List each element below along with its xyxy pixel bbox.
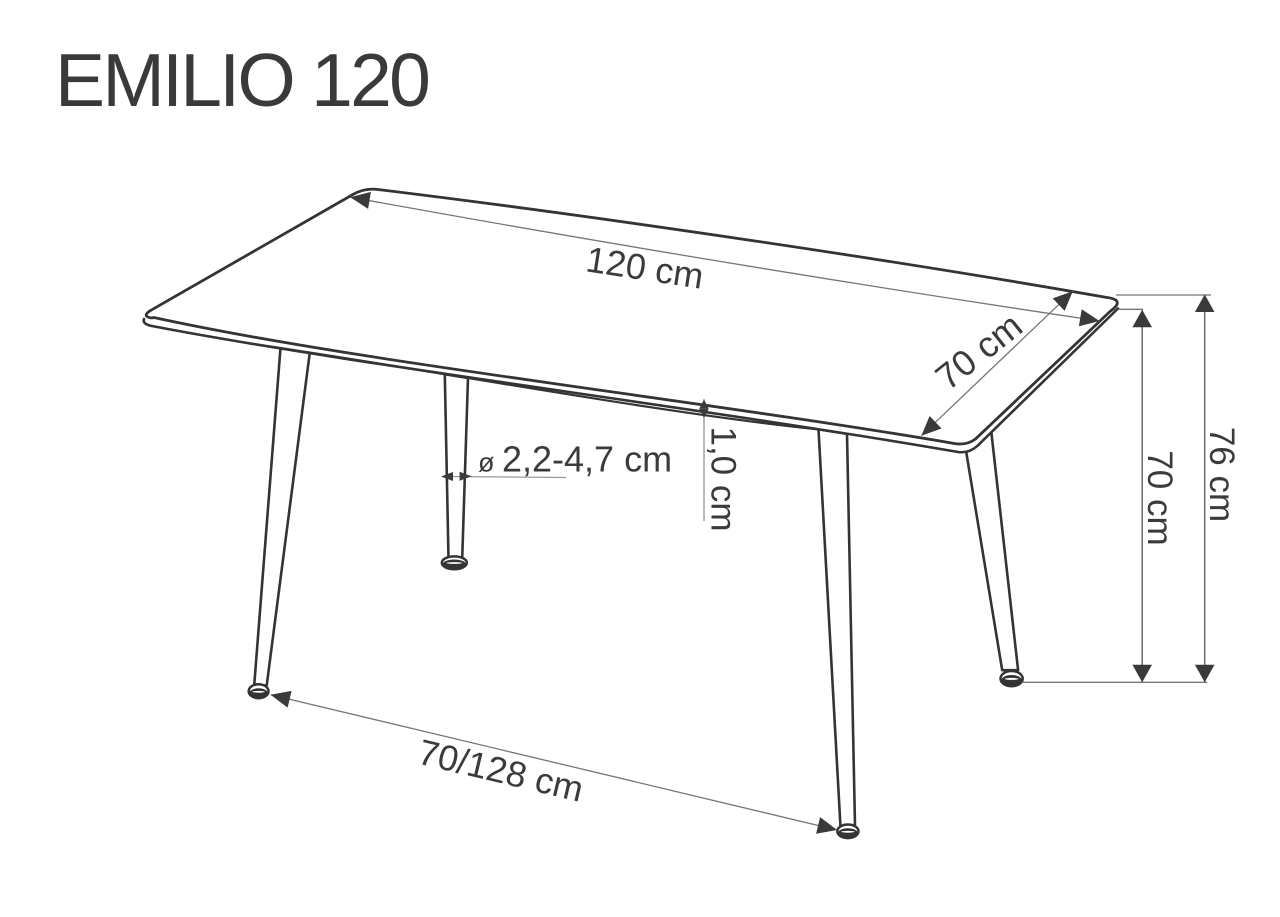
svg-text:1,0 cm: 1,0 cm — [704, 426, 743, 531]
svg-text:70 cm: 70 cm — [1140, 450, 1179, 545]
svg-text:70/128 cm: 70/128 cm — [414, 731, 587, 810]
svg-text:ø 2,2-4,7 cm: ø 2,2-4,7 cm — [478, 439, 672, 480]
svg-text:76 cm: 76 cm — [1202, 427, 1241, 522]
